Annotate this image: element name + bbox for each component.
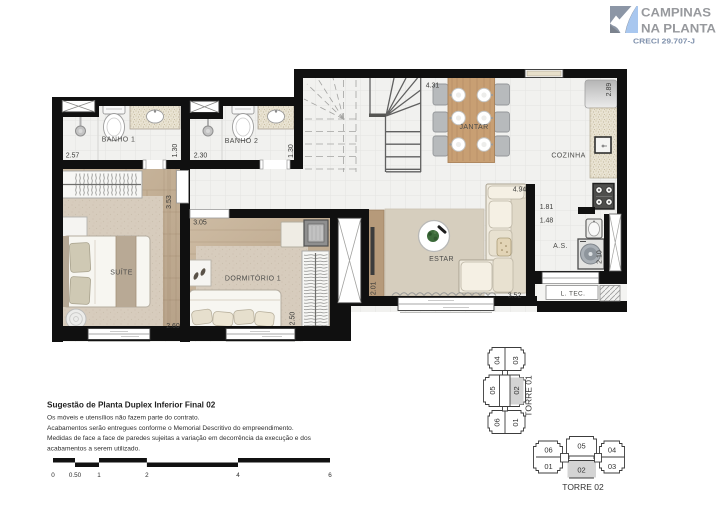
svg-text:2.57: 2.57 [66,153,80,160]
svg-text:NA PLANTA: NA PLANTA [641,24,716,36]
svg-text:JANTAR: JANTAR [459,124,488,131]
svg-text:03: 03 [608,462,616,471]
svg-text:05: 05 [488,386,497,394]
svg-text:1.30: 1.30 [288,144,295,158]
svg-text:3.53: 3.53 [166,195,173,209]
svg-text:BANHO 1: BANHO 1 [102,137,136,144]
svg-text:2.01: 2.01 [371,281,378,295]
svg-text:02: 02 [512,386,521,394]
svg-text:2.89: 2.89 [606,83,613,97]
svg-text:04: 04 [493,356,502,364]
svg-text:Medidas de face a face de pare: Medidas de face a face de paredes sujeit… [47,435,312,442]
svg-text:1.81: 1.81 [540,204,554,211]
svg-text:L. TEC.: L. TEC. [561,291,586,298]
svg-text:Acabamentos serão entregues co: Acabamentos serão entregues conforme o M… [47,425,294,432]
svg-text:2: 2 [145,472,149,479]
svg-text:01: 01 [511,418,520,426]
svg-text:Os móveis e utensílios não faz: Os móveis e utensílios não fazem parte d… [47,415,200,422]
svg-text:6: 6 [328,472,332,479]
svg-text:06: 06 [493,418,502,426]
svg-text:SUÍTE: SUÍTE [110,268,133,277]
svg-text:Sugestão de Planta Duplex Infe: Sugestão de Planta Duplex Inferior Final… [47,401,216,410]
svg-text:0.50: 0.50 [69,472,82,479]
svg-text:0: 0 [51,472,55,479]
svg-text:05: 05 [577,442,585,451]
svg-text:A.S.: A.S. [553,243,568,250]
svg-text:CRECI 29.707-J: CRECI 29.707-J [633,37,695,46]
svg-text:COZINHA: COZINHA [551,153,585,160]
svg-text:3.05: 3.05 [193,220,207,227]
svg-text:03: 03 [511,356,520,364]
svg-text:4.94: 4.94 [513,187,527,194]
svg-text:BANHO 2: BANHO 2 [225,138,259,145]
svg-text:3.52: 3.52 [508,292,522,299]
svg-text:02: 02 [577,466,585,475]
svg-text:06: 06 [544,446,552,455]
svg-text:TORRE 02: TORRE 02 [562,482,604,492]
svg-text:2.10: 2.10 [597,250,604,264]
svg-text:2.60: 2.60 [166,323,180,330]
svg-text:ESTAR: ESTAR [429,256,454,263]
svg-text:4.31: 4.31 [426,83,440,90]
svg-text:1.30: 1.30 [172,144,179,158]
svg-text:TORRE 01: TORRE 01 [524,375,534,417]
svg-text:2.30: 2.30 [194,153,208,160]
svg-text:04: 04 [608,446,616,455]
svg-text:acabamentos a serem utilizado.: acabamentos a serem utilizado. [47,445,140,452]
svg-text:4: 4 [236,472,240,479]
svg-text:2.50: 2.50 [290,312,297,326]
svg-text:CAMPINAS: CAMPINAS [641,8,711,20]
svg-text:1.48: 1.48 [540,218,554,225]
svg-text:01: 01 [544,462,552,471]
svg-text:DORMITÓRIO 1: DORMITÓRIO 1 [225,274,281,283]
svg-text:1: 1 [97,472,101,479]
